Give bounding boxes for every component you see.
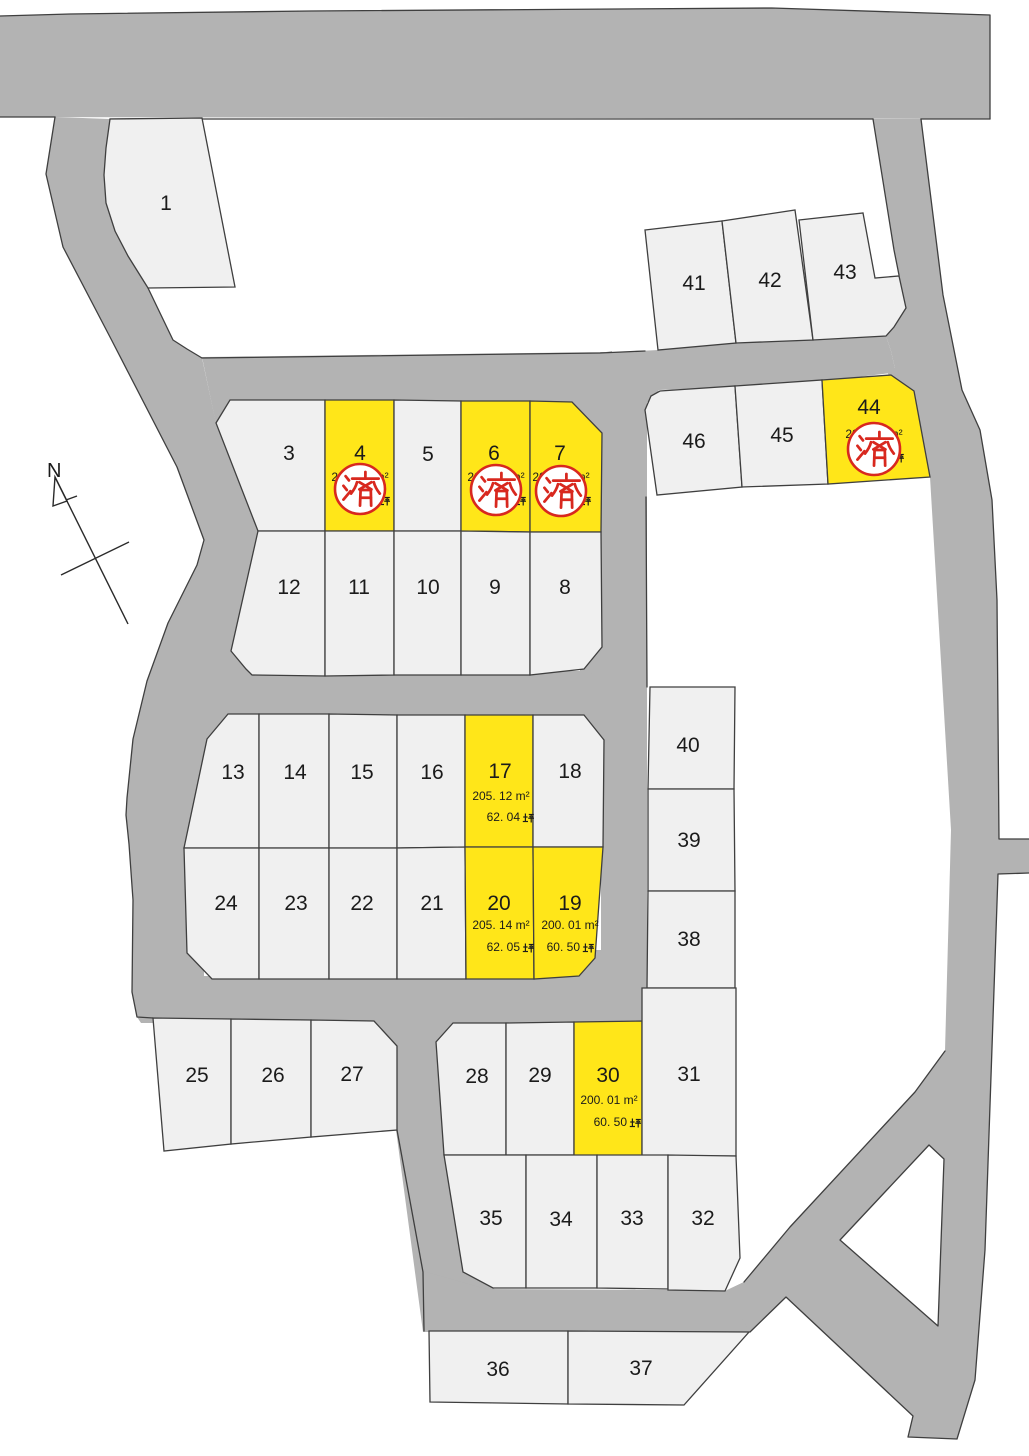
svg-text:30: 30 xyxy=(596,1064,619,1087)
svg-text:60. 50: 60. 50 xyxy=(547,940,581,954)
svg-text:25: 25 xyxy=(185,1064,208,1087)
svg-text:3: 3 xyxy=(283,442,295,465)
svg-text:17: 17 xyxy=(488,760,511,783)
svg-text:31: 31 xyxy=(677,1063,700,1086)
svg-text:36: 36 xyxy=(486,1358,509,1381)
svg-text:14: 14 xyxy=(283,761,307,784)
svg-text:6: 6 xyxy=(488,442,500,465)
svg-text:16: 16 xyxy=(420,761,443,784)
svg-text:35: 35 xyxy=(479,1207,502,1230)
svg-text:44: 44 xyxy=(857,396,881,419)
svg-text:205. 14 m²: 205. 14 m² xyxy=(472,918,529,932)
svg-text:42: 42 xyxy=(758,269,781,292)
svg-text:11: 11 xyxy=(348,576,370,599)
svg-text:26: 26 xyxy=(261,1064,284,1087)
svg-text:43: 43 xyxy=(833,261,856,284)
svg-text:21: 21 xyxy=(420,892,443,915)
svg-text:38: 38 xyxy=(677,928,700,951)
svg-text:13: 13 xyxy=(221,761,244,784)
svg-text:28: 28 xyxy=(465,1065,488,1088)
svg-text:33: 33 xyxy=(620,1207,643,1230)
svg-text:15: 15 xyxy=(350,761,373,784)
svg-text:24: 24 xyxy=(214,892,238,915)
svg-text:7: 7 xyxy=(554,442,566,465)
svg-text:29: 29 xyxy=(528,1064,551,1087)
svg-text:62. 05: 62. 05 xyxy=(487,940,521,954)
svg-text:23: 23 xyxy=(284,892,307,915)
svg-text:62. 04: 62. 04 xyxy=(487,810,521,824)
svg-text:32: 32 xyxy=(691,1207,714,1230)
svg-text:18: 18 xyxy=(558,760,581,783)
svg-text:20: 20 xyxy=(487,892,510,915)
svg-text:N: N xyxy=(47,460,61,482)
svg-text:27: 27 xyxy=(340,1063,363,1086)
svg-text:10: 10 xyxy=(416,576,439,599)
svg-text:205. 12 m²: 205. 12 m² xyxy=(472,789,529,803)
svg-text:22: 22 xyxy=(350,892,373,915)
svg-text:200. 01 m²: 200. 01 m² xyxy=(541,918,598,932)
svg-text:34: 34 xyxy=(549,1208,573,1231)
svg-text:39: 39 xyxy=(677,829,700,852)
svg-text:41: 41 xyxy=(682,272,705,295)
svg-text:9: 9 xyxy=(489,576,501,599)
svg-text:1: 1 xyxy=(160,192,172,215)
svg-text:200. 01 m²: 200. 01 m² xyxy=(580,1093,637,1107)
svg-text:19: 19 xyxy=(558,892,581,915)
svg-text:8: 8 xyxy=(559,576,571,599)
svg-text:45: 45 xyxy=(770,424,793,447)
svg-text:40: 40 xyxy=(676,734,699,757)
svg-text:12: 12 xyxy=(277,576,300,599)
svg-text:5: 5 xyxy=(422,443,434,466)
svg-text:46: 46 xyxy=(682,430,705,453)
svg-text:4: 4 xyxy=(354,442,366,465)
svg-text:60. 50: 60. 50 xyxy=(594,1115,628,1129)
svg-text:37: 37 xyxy=(629,1357,652,1380)
